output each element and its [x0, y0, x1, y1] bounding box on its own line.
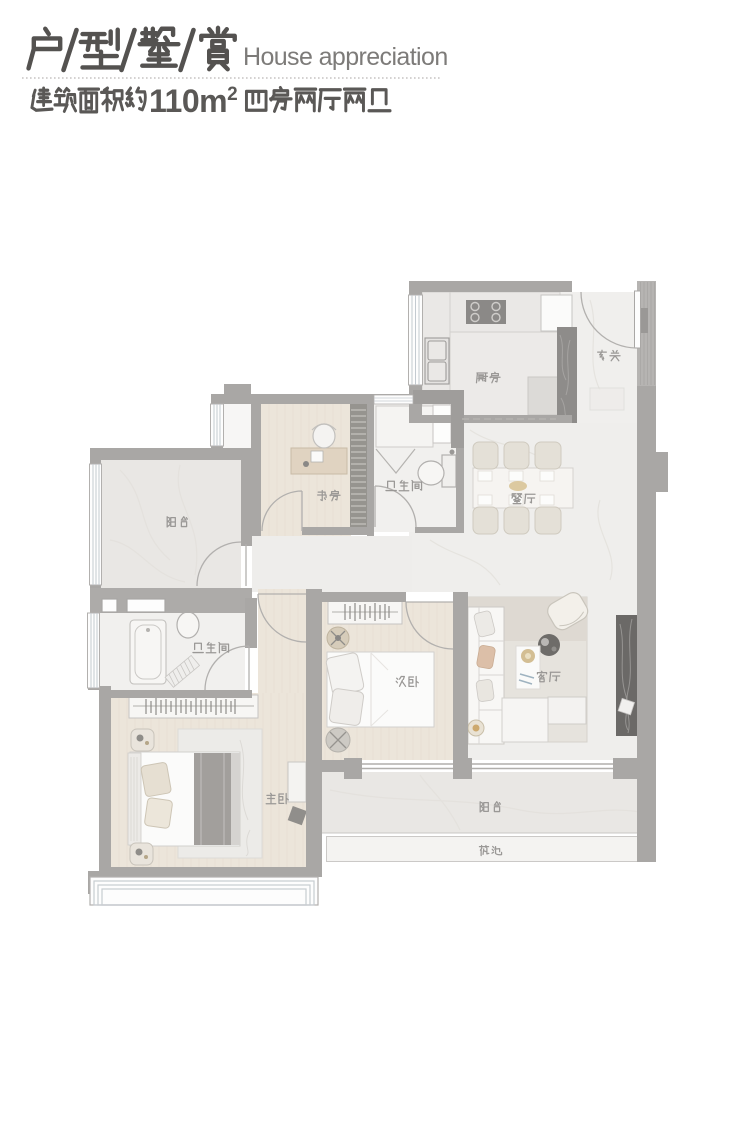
- svg-text:110m2: 110m2: [149, 83, 237, 119]
- svg-text:House appreciation: House appreciation: [243, 43, 448, 71]
